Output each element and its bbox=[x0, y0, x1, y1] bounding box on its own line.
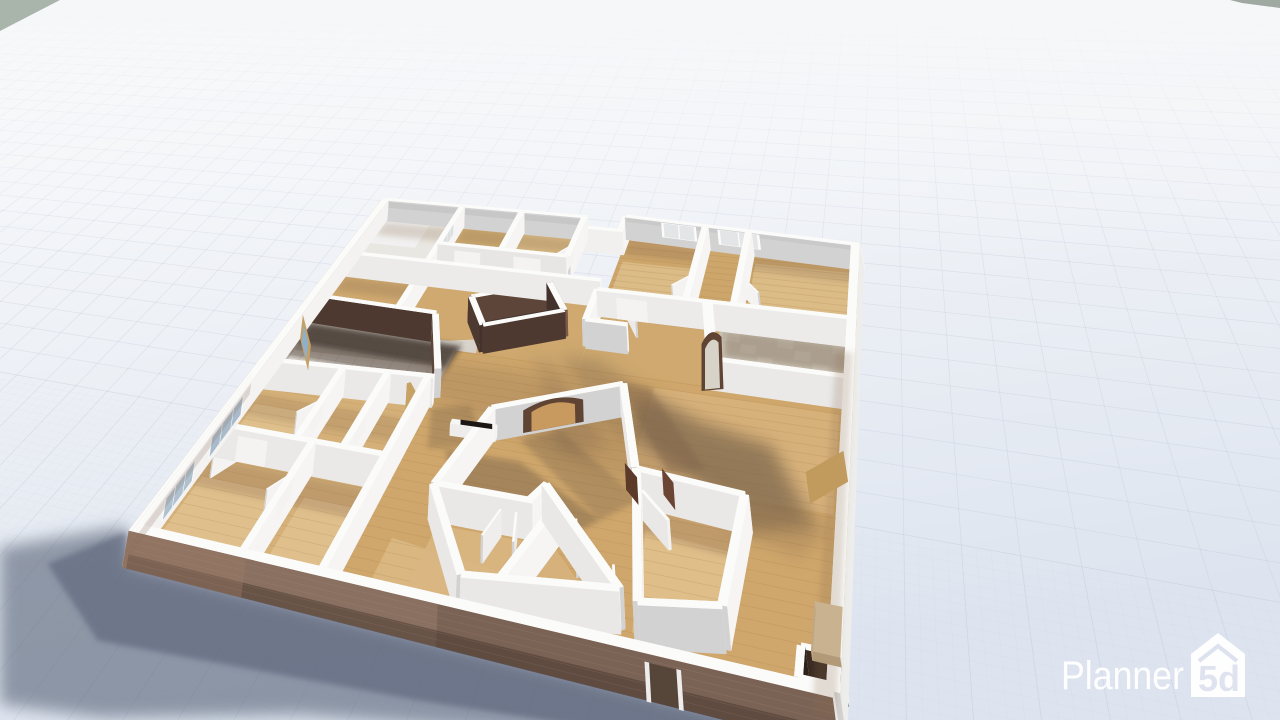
svg-text:5d: 5d bbox=[1198, 658, 1240, 699]
svg-text:Planner: Planner bbox=[1061, 654, 1184, 698]
